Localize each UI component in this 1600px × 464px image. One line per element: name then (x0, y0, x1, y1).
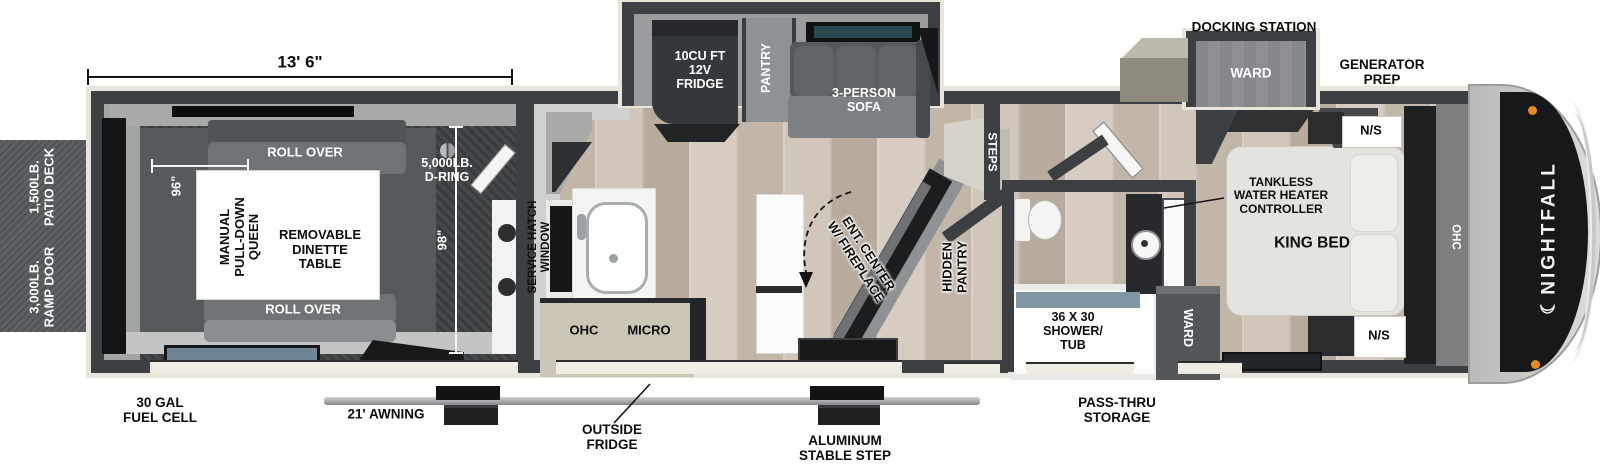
label-queen-bed: MANUAL PULL-DOWN QUEEN (218, 197, 262, 276)
entry-step-lower (818, 405, 880, 425)
sink-drain (609, 254, 618, 263)
label-outside-fridge: OUTSIDE FRIDGE (582, 422, 642, 452)
pillow-top (1350, 154, 1398, 232)
dim-body-width: 98" (436, 230, 451, 251)
label-tankless: TANKLESS WATER HEATER CONTROLLER (1234, 176, 1328, 216)
garage-step-lower (444, 405, 498, 425)
garage-speaker-bottom (498, 278, 516, 296)
dim-garage-length: 13' 6" (277, 52, 322, 71)
label-sofa: 3-PERSON SOFA (832, 86, 896, 114)
fridge-top (652, 20, 738, 36)
bedroom-rear-wall (1404, 106, 1436, 364)
bottom-sill-passthru-2 (1026, 362, 1134, 374)
toilet-bowl (1028, 200, 1062, 240)
label-generator-prep: GENERATOR PREP (1339, 57, 1424, 87)
moon-icon: ☾ (1538, 295, 1559, 315)
label-fuel-cell: 30 GAL FUEL CELL (123, 395, 197, 425)
label-dinette: REMOVABLE DINETTE TABLE (279, 228, 361, 272)
label-roll-over-top: ROLL OVER (267, 146, 343, 161)
label-ward-slide: WARD (1230, 65, 1271, 80)
stove-cap (690, 298, 706, 360)
label-ns-top: N/S (1360, 124, 1382, 139)
service-hatch-window (550, 206, 574, 292)
label-bedroom-ohc: OHC (1449, 224, 1462, 250)
dim-garage-width: 96" (170, 176, 185, 197)
label-ramp-door: 3,000LB. RAMP DOOR (27, 247, 56, 328)
brand-logo: ☾NIGHTFALL (1538, 161, 1559, 315)
bottom-sill-kitchen (556, 360, 902, 374)
bath-sink-drain (1141, 240, 1148, 247)
label-d-ring: 5,000LB. D-RING (421, 156, 472, 184)
marker-light-top (1528, 106, 1537, 115)
sink-faucet (577, 214, 586, 240)
label-service-hatch: SERVICE HATCH WINDOW (527, 201, 553, 294)
docking-station-front (1120, 58, 1188, 102)
label-roll-over-bottom: ROLL OVER (265, 303, 341, 318)
bath-wall-left (1002, 180, 1014, 372)
nightstand-bottom-dark (1308, 316, 1354, 356)
garage-header (172, 106, 354, 117)
garage-step-upper (436, 386, 500, 400)
label-docking-station: DOCKING STATION (1192, 19, 1317, 34)
label-micro: MICRO (627, 324, 670, 339)
bottom-sill-garage (150, 360, 518, 374)
label-ns-bottom: N/S (1368, 329, 1390, 344)
label-fridge: 10CU FT 12V FRIDGE (675, 49, 726, 91)
docking-station-top (1120, 38, 1188, 60)
label-king-bed: KING BED (1274, 234, 1350, 251)
bottom-sill-bedroom (1178, 361, 1242, 374)
brand-logo-text: NIGHTFALL (1538, 161, 1559, 295)
label-ward-closet: WARD (1181, 309, 1195, 347)
pillow-bottom (1350, 234, 1398, 312)
label-pantry: PANTRY (759, 43, 773, 93)
label-stable-step: ALUMINUM STABLE STEP (799, 433, 891, 463)
garage-speaker-top (498, 224, 516, 242)
sofa-cushion-1 (794, 46, 834, 96)
sofa-window-glass (814, 26, 912, 38)
nightstand-top-dark (1308, 112, 1344, 144)
label-shower-tub: 36 X 30 SHOWER/ TUB (1043, 310, 1103, 352)
entry-step-upper (810, 386, 884, 400)
kitchen-sink (586, 202, 648, 294)
bath-wall-top (1002, 180, 1196, 192)
label-pass-thru: PASS-THRU STORAGE (1078, 395, 1156, 425)
shower-deck (1016, 292, 1140, 308)
ramp-door-frame (102, 118, 126, 354)
rollover-sofa-bottom-front (204, 320, 396, 342)
label-ohc: OHC (570, 324, 599, 339)
label-steps: STEPS (985, 132, 998, 171)
label-hidden-pantry: HIDDEN PANTRY (940, 241, 969, 293)
bottom-sill-passthru-1 (944, 362, 1000, 374)
label-patio-deck: 1,500LB. PATIO DECK (27, 148, 56, 226)
marker-light-bottom (1531, 360, 1540, 369)
island-sink-line (756, 286, 802, 293)
kitchen-island (756, 194, 804, 354)
floorplan: ☾NIGHTFALL 13' 6" 96" 98" 1,500LB. PATIO… (0, 0, 1600, 464)
label-awning: 21' AWNING (348, 406, 425, 421)
